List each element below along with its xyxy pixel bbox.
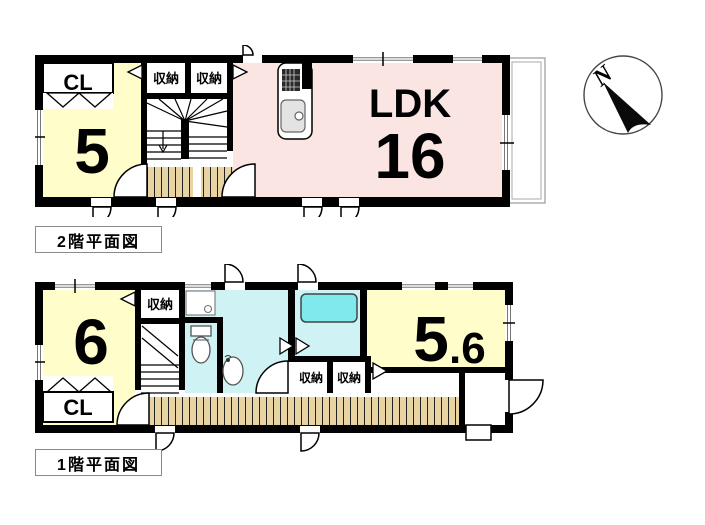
casement-window-icon [243, 45, 253, 55]
entrance-door-swing-icon [509, 380, 543, 414]
entrance-step [466, 425, 491, 440]
casement-window-icon [225, 264, 243, 282]
casement-window-icon [298, 264, 316, 282]
floor1-caption: 1階平面図 [35, 449, 162, 476]
room6-size-label: 6 [73, 306, 109, 378]
closet-2f-label: CL [63, 70, 92, 95]
storage-1f-top: 収納 [141, 290, 179, 318]
bathtub-icon [301, 294, 357, 322]
floor1-plan: CL 収納 [35, 264, 555, 452]
balcony [508, 58, 545, 203]
hallway-floor [141, 397, 460, 425]
floor2-plan: CL 収納 収納 [35, 45, 550, 217]
door-swing-icon [158, 207, 176, 217]
closet-1f-label: CL [63, 395, 92, 420]
floor2-caption-text: 2階平面図 [57, 228, 140, 252]
floorplan-page: CL 収納 収納 [0, 0, 705, 525]
closet-2f: CL [43, 63, 113, 109]
door-swing-icon [301, 433, 319, 451]
door-swing-icon [93, 207, 111, 217]
door-swing-icon [341, 207, 359, 217]
floor1-caption-text: 1階平面図 [57, 451, 140, 475]
door-swing-icon [304, 207, 322, 217]
storage-hall-left-label: 収納 [299, 370, 323, 385]
floor2-caption: 2階平面図 [35, 226, 162, 253]
storage-hall-right-label: 収納 [337, 370, 361, 385]
storage-left-label: 収納 [153, 71, 179, 86]
room56-size-main-label: 5 [413, 303, 449, 375]
kitchen-counter [278, 59, 312, 139]
stove-icon [282, 69, 300, 91]
storage-right-label: 収納 [196, 71, 222, 86]
ldk-size-label: 16 [374, 120, 445, 192]
compass-icon: N [578, 50, 670, 142]
room56-size-decimal-label: .6 [449, 324, 486, 373]
storage-top-label: 収納 [147, 297, 173, 312]
ldk-floor [233, 63, 502, 197]
toilet-icon [191, 326, 211, 363]
room5-size-label: 5 [74, 115, 110, 187]
closet-1f: CL [43, 376, 113, 422]
washer-pan-icon [186, 291, 215, 315]
kitchen-sink-icon [281, 100, 305, 132]
